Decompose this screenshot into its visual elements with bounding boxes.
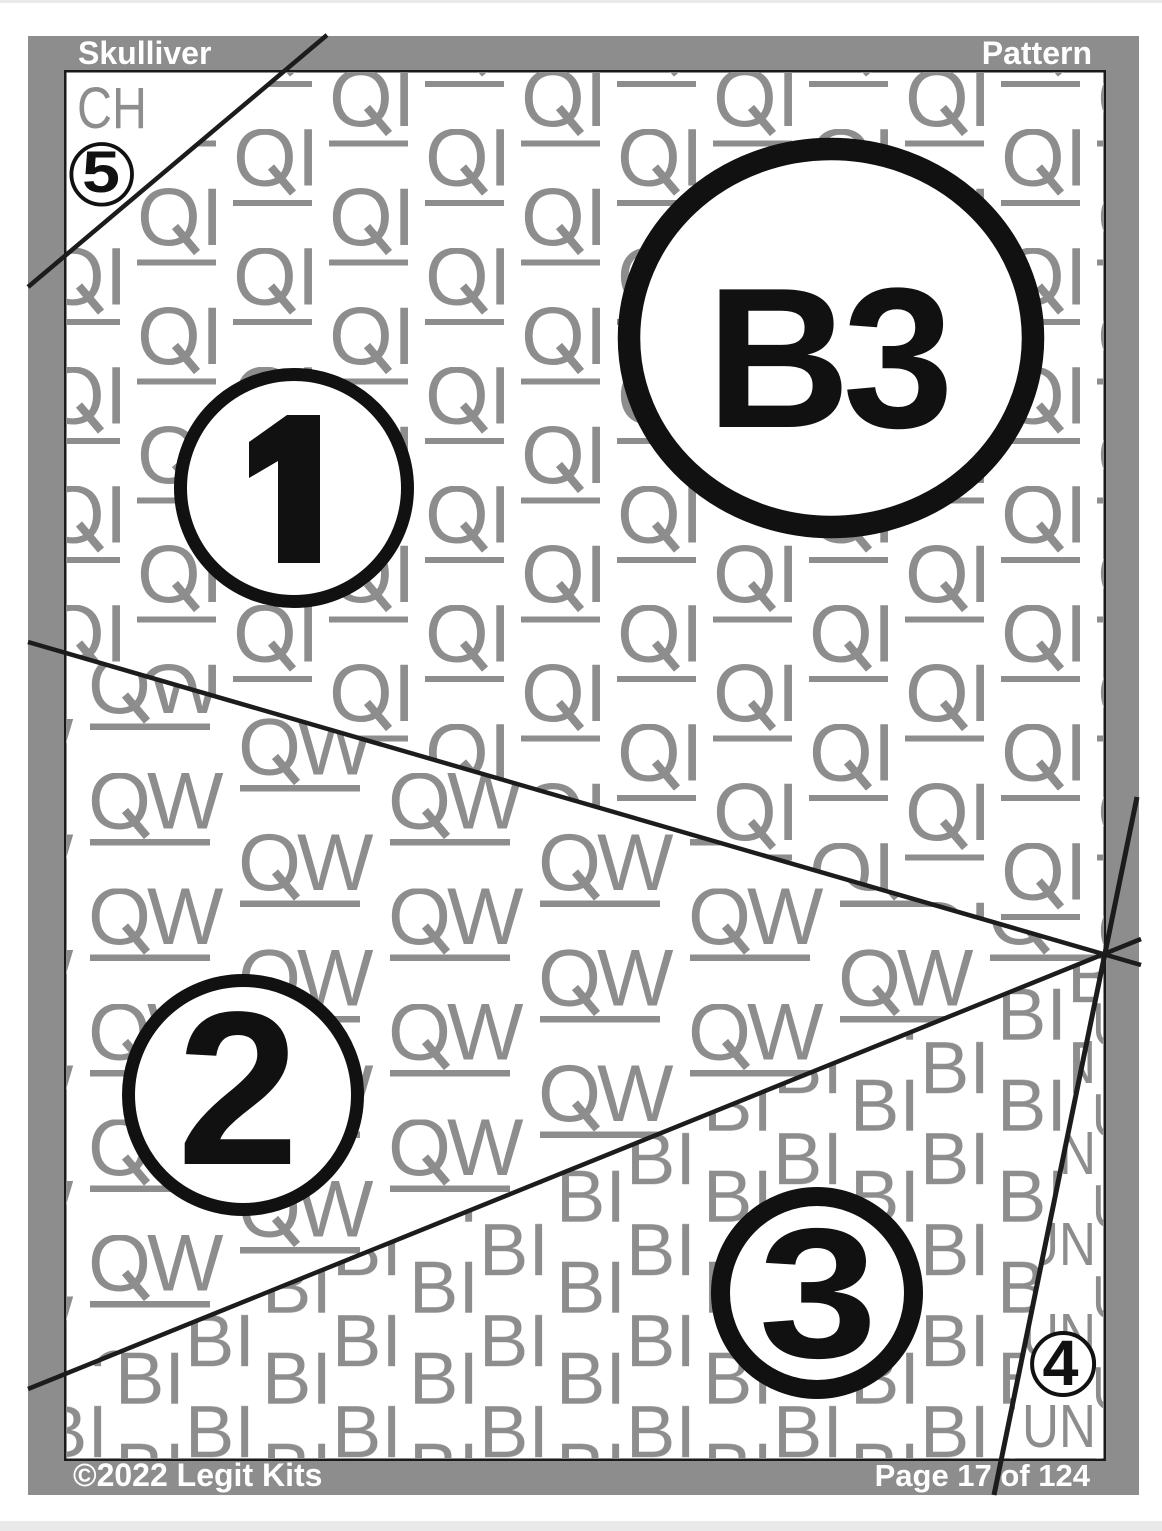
- svg-text:B3: B3: [706, 247, 946, 470]
- svg-text:3: 3: [759, 1191, 878, 1397]
- svg-text:5: 5: [82, 140, 120, 205]
- svg-text:CH: CH: [77, 76, 147, 141]
- svg-text:©2022 Legit Kits: ©2022 Legit Kits: [73, 1457, 322, 1493]
- svg-text:Skulliver: Skulliver: [78, 35, 211, 71]
- svg-text:2: 2: [177, 967, 299, 1211]
- svg-text:Pattern: Pattern: [982, 35, 1092, 71]
- svg-text:Page 17 of 124: Page 17 of 124: [875, 1458, 1091, 1493]
- svg-text:4: 4: [1043, 1327, 1079, 1399]
